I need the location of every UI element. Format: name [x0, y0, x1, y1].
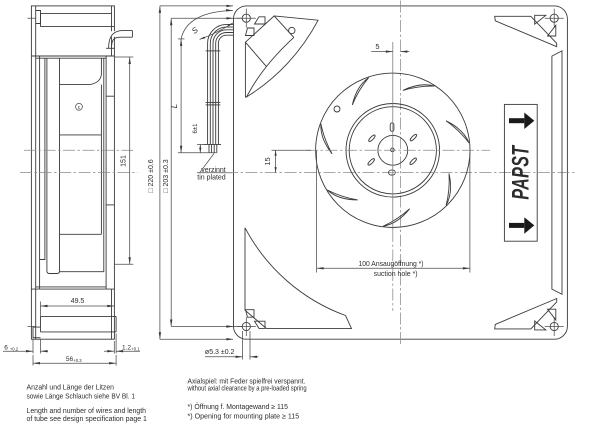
svg-text:+0.1: +0.1 — [131, 346, 140, 351]
svg-text:+0.2: +0.2 — [10, 346, 19, 351]
svg-text:Length and number of wires and: Length and number of wires and length — [27, 408, 147, 415]
svg-text:□ 220 ±0.6: □ 220 ±0.6 — [148, 159, 155, 192]
svg-text:Axialspiel: mit Feder spielfre: Axialspiel: mit Feder spielfrei verspann… — [188, 379, 306, 386]
svg-text:*) Opening for mounting plate: *) Opening for mounting plate ≥ 115 — [188, 414, 300, 421]
svg-text:□ 203 ±0.3: □ 203 ±0.3 — [163, 159, 170, 192]
svg-text:Anzahl und Länge der Litzen: Anzahl und Länge der Litzen — [27, 385, 115, 392]
svg-text:56: 56 — [66, 356, 74, 363]
svg-text:100 Ansaugöffnung *): 100 Ansaugöffnung *) — [359, 261, 424, 268]
svg-text:*) Öffnung f. Montagewand ≥ 11: *) Öffnung f. Montagewand ≥ 115 — [188, 403, 288, 411]
svg-text:1.2: 1.2 — [122, 345, 131, 352]
svg-text:verzinnt: verzinnt — [201, 167, 226, 174]
svg-text:+0.3: +0.3 — [73, 358, 82, 363]
svg-text:151: 151 — [121, 155, 128, 167]
svg-text:6: 6 — [4, 345, 8, 352]
svg-text:5: 5 — [375, 42, 379, 51]
svg-text:6±1: 6±1 — [193, 123, 199, 134]
svg-text:15: 15 — [263, 157, 272, 165]
svg-text:of tube see design specificati: of tube see design specification page 1 — [27, 416, 148, 423]
svg-text:PAPST: PAPST — [508, 144, 535, 199]
svg-text:tin plated: tin plated — [197, 175, 226, 182]
svg-text:L: L — [170, 104, 179, 108]
svg-text:suction hole *): suction hole *) — [374, 271, 418, 278]
svg-text:ø5.3 ±0.2: ø5.3 ±0.2 — [205, 349, 235, 356]
svg-text:sowie Länge Schlauch siehe BV: sowie Länge Schlauch siehe BV Bl. 1 — [27, 394, 136, 401]
svg-text:49.5: 49.5 — [71, 298, 85, 305]
svg-text:without axial clearance by a p: without axial clearance by a pre-loaded … — [187, 386, 307, 393]
